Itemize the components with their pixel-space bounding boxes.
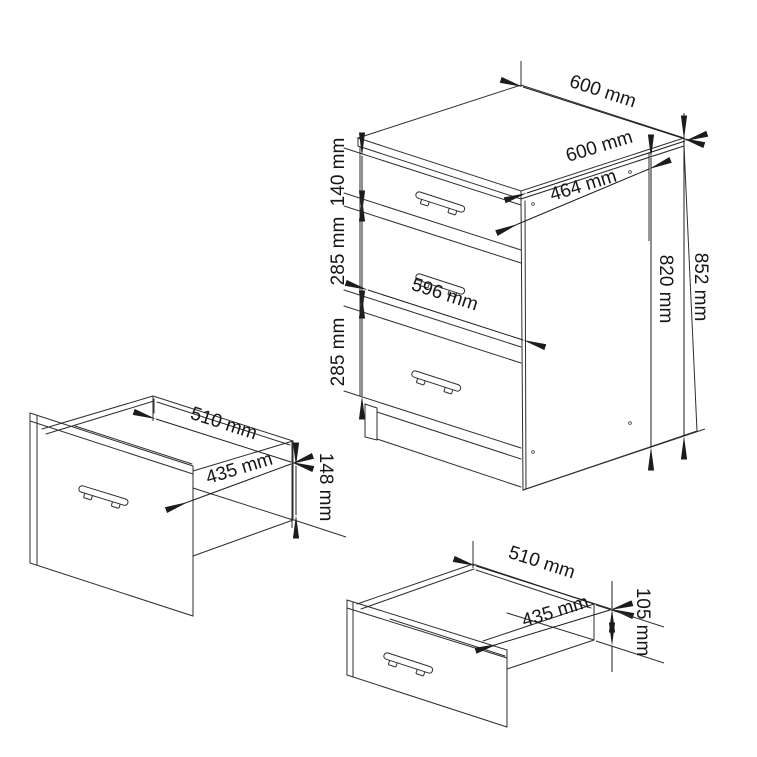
drawer2-top-edge: [344, 206, 521, 263]
drawer-bottom-side-top-edges: [357, 564, 474, 609]
drawer-bottom-front-panel: [347, 600, 507, 727]
plinth-leg: [365, 404, 377, 440]
label-drawer3-285: 285 mm: [328, 318, 349, 387]
label-bottom-depth-435: 435 mm: [520, 592, 592, 632]
label-bottom-height-105: 105 mm: [632, 588, 653, 657]
label-left-height-148: 148 mm: [315, 453, 336, 522]
drawing-canvas: 600 mm 600 mm 464 mm 852 mm 820 mm 140 m…: [0, 0, 757, 757]
label-carcass-height-820: 820 mm: [655, 255, 676, 324]
drawer1-handle-icon: [414, 191, 466, 217]
label-drawer2-285: 285 mm: [328, 217, 349, 286]
label-left-width-510: 510 mm: [188, 403, 260, 444]
drawer-left-back-bottom-edge: [193, 488, 293, 520]
ext-left-148-bottom: [291, 519, 346, 537]
drawer-left-side-bottom-edge: [193, 520, 293, 556]
label-bottom-width-510: 510 mm: [506, 542, 578, 583]
label-front-width-596: 596 mm: [409, 274, 481, 315]
drawer3-top-edge: [344, 306, 521, 363]
label-total-height-852: 852 mm: [690, 253, 711, 322]
plinth-front: [377, 412, 521, 487]
furniture-dimension-diagram: 600 mm 600 mm 464 mm 852 mm 820 mm 140 m…: [0, 0, 757, 757]
drawer-left-front-panel: [30, 413, 193, 616]
label-drawer1-140: 140 mm: [328, 138, 349, 207]
drawer3-handle-icon: [410, 370, 462, 396]
ext-464-left: [509, 224, 518, 228]
drawer-bottom-drawing: [347, 564, 594, 727]
drawer-bottom-side-bottom-edge: [507, 640, 594, 669]
